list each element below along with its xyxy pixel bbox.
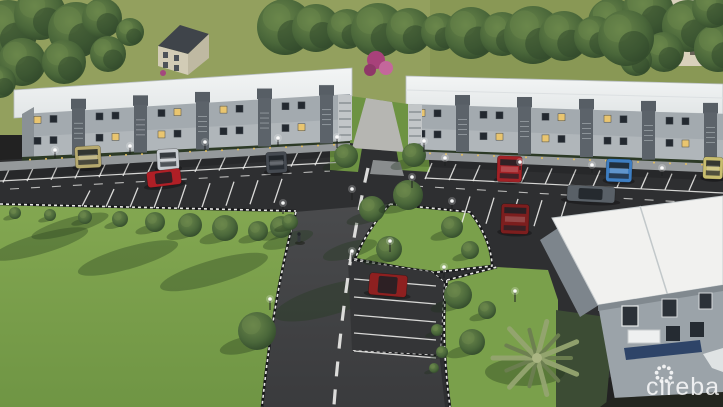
beige-van (71, 145, 104, 172)
pink-shrub (160, 70, 166, 76)
small-parking (348, 260, 444, 355)
window (622, 306, 638, 326)
rendering-canvas: cireba (0, 0, 723, 407)
dark-gray-car (263, 151, 290, 176)
glass-door (690, 322, 704, 337)
glass-door (666, 326, 680, 341)
window (662, 299, 677, 317)
blue-car (602, 158, 635, 185)
dark-red-suv (497, 203, 533, 237)
watermark-text: cireba (646, 373, 720, 401)
window (699, 293, 712, 309)
yellow-van (700, 157, 723, 183)
balcony (628, 330, 660, 343)
aerial-rendering: cireba (0, 0, 723, 407)
townhouse-row-right (406, 76, 723, 181)
